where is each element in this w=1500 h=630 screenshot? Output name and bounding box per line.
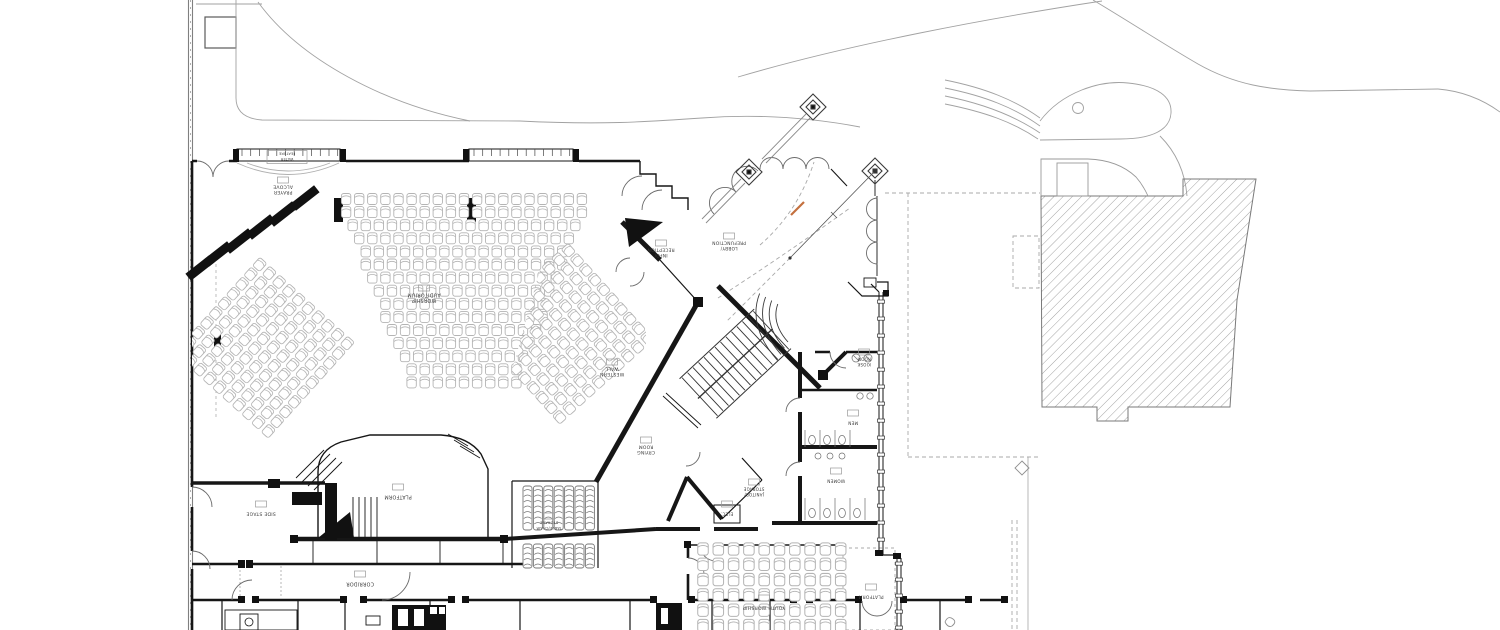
- svg-text:KIOSK: KIOSK: [857, 362, 870, 367]
- svg-text:YOUTH WORSHIP: YOUTH WORSHIP: [743, 604, 786, 610]
- svg-text:CORRIDOR: CORRIDOR: [346, 580, 374, 586]
- svg-text:STORAGE: STORAGE: [743, 486, 764, 491]
- svg-text:SIDE STAGE: SIDE STAGE: [246, 510, 276, 516]
- svg-text:PLATFORM: PLATFORM: [858, 593, 883, 599]
- svg-text:WOMEN: WOMEN: [827, 478, 845, 483]
- svg-text:AUDITORIUM: AUDITORIUM: [407, 291, 441, 297]
- svg-text:PREFUNCTION: PREFUNCTION: [712, 239, 746, 245]
- svg-text:MEN: MEN: [848, 420, 858, 425]
- svg-text:ALCOVE: ALCOVE: [273, 183, 293, 189]
- floor-plan-svg: WATERFEATUREPRAYERALCOVEWORSHIPAUDITORIU…: [0, 0, 1500, 630]
- svg-text:WORSHIP: WORSHIP: [412, 297, 437, 303]
- svg-text:STORAGE: STORAGE: [540, 520, 558, 524]
- svg-text:INFO/: INFO/: [654, 252, 668, 258]
- svg-text:CRYING: CRYING: [637, 449, 655, 455]
- service-block: [656, 603, 682, 630]
- svg-text:WATER: WATER: [280, 157, 293, 161]
- svg-text:LOBBY/: LOBBY/: [720, 245, 737, 251]
- svg-text:RECEPTION: RECEPTION: [647, 246, 674, 252]
- svg-text:JANITOR/: JANITOR/: [744, 492, 765, 497]
- existing-building-hatched: [1041, 159, 1256, 421]
- platform-step-block: [292, 492, 322, 505]
- floor-plan-canvas: WATERFEATUREPRAYERALCOVEWORSHIPAUDITORIU…: [0, 0, 1500, 630]
- svg-text:ROOM: ROOM: [857, 356, 871, 361]
- svg-text:WALL: WALL: [605, 365, 619, 371]
- svg-text:TABLE/CHAIR: TABLE/CHAIR: [536, 526, 563, 530]
- svg-text:FEATURE: FEATURE: [279, 151, 296, 155]
- svg-text:PLATFORM: PLATFORM: [384, 493, 412, 499]
- svg-text:WESTERN: WESTERN: [600, 371, 624, 377]
- svg-text:ROOM: ROOM: [639, 443, 654, 449]
- svg-text:PRAYER: PRAYER: [273, 189, 293, 195]
- svg-text:ELEC.: ELEC.: [721, 511, 734, 516]
